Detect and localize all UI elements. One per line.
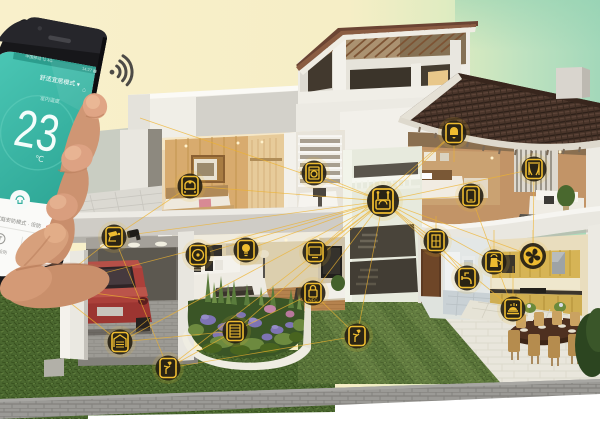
svg-text:NFC: NFC bbox=[308, 298, 318, 303]
svg-text:℃: ℃ bbox=[34, 154, 44, 164]
